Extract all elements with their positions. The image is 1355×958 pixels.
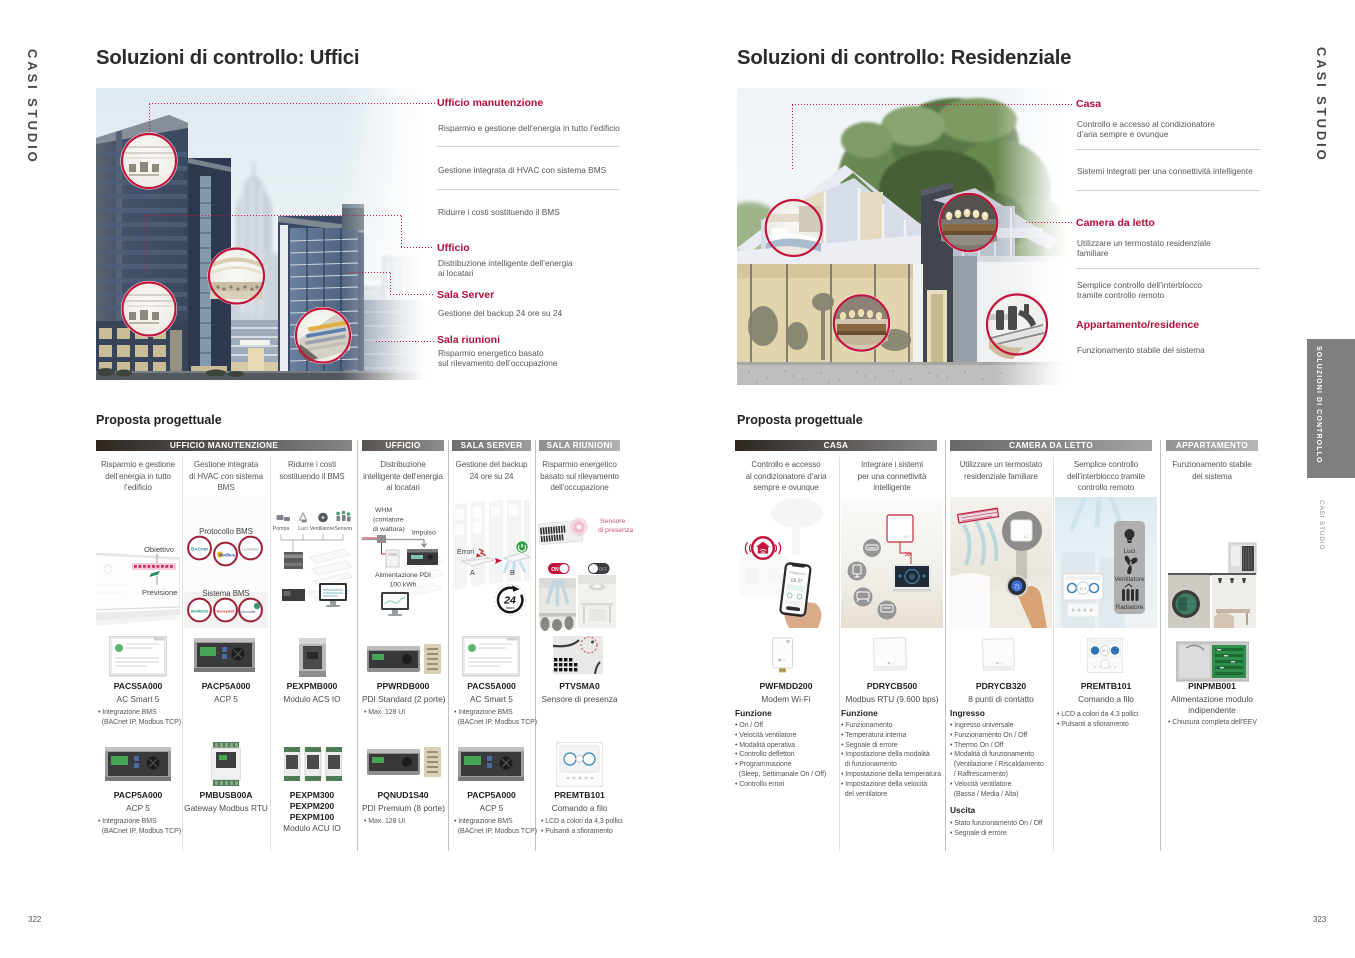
svg-text:SIEMENS: SIEMENS (190, 609, 208, 614)
svg-text:Sensore: Sensore (334, 526, 352, 532)
svg-text:OFF: OFF (599, 567, 608, 572)
svg-text:24: 24 (503, 595, 516, 607)
svg-text:Ventilatore: Ventilatore (310, 526, 335, 532)
svg-text:Pompa: Pompa (273, 526, 290, 532)
svg-text:71: 71 (1014, 585, 1020, 591)
svg-text:Errori: Errori (457, 549, 475, 556)
svg-text:Impulso: Impulso (412, 530, 436, 537)
svg-text:WHM: WHM (375, 507, 392, 514)
svg-text:BACnet: BACnet (191, 547, 208, 552)
svg-text:Modbus: Modbus (219, 553, 236, 558)
svg-text:Luci: Luci (298, 526, 308, 532)
svg-text:hours: hours (506, 606, 515, 610)
svg-text:ON: ON (551, 567, 559, 573)
svg-text:Radiatore: Radiatore (1116, 604, 1144, 611)
svg-text:LG: LG (782, 659, 787, 663)
svg-text:Sensore: Sensore (600, 518, 626, 525)
svg-text:Alimentazione PDI: Alimentazione PDI (375, 572, 431, 579)
svg-text:100 kWh: 100 kWh (390, 582, 417, 589)
svg-text:Sistema BMS: Sistema BMS (202, 589, 249, 598)
svg-text:A: A (470, 570, 475, 577)
svg-text:Protocollo BMS: Protocollo BMS (199, 527, 253, 536)
svg-text:Luci: Luci (1124, 548, 1136, 555)
svg-text:Honeywell: Honeywell (217, 610, 235, 614)
svg-text:Ventilatore: Ventilatore (1114, 576, 1145, 583)
svg-text:LG: LG (1024, 535, 1029, 539)
svg-text:42.1: 42.1 (1102, 649, 1108, 653)
svg-text:LG: LG (904, 535, 909, 539)
svg-text:di presenza: di presenza (598, 527, 633, 534)
svg-text:Schneider: Schneider (240, 610, 256, 614)
svg-text:42.1: 42.1 (1079, 586, 1088, 591)
svg-text:Obiettivo: Obiettivo (144, 545, 174, 554)
svg-text:B: B (510, 570, 515, 577)
svg-text:(contatore: (contatore (373, 517, 404, 524)
svg-text:LonWorks: LonWorks (242, 548, 259, 552)
svg-text:di wattora): di wattora) (373, 526, 405, 533)
svg-text:Previsione: Previsione (142, 588, 177, 597)
